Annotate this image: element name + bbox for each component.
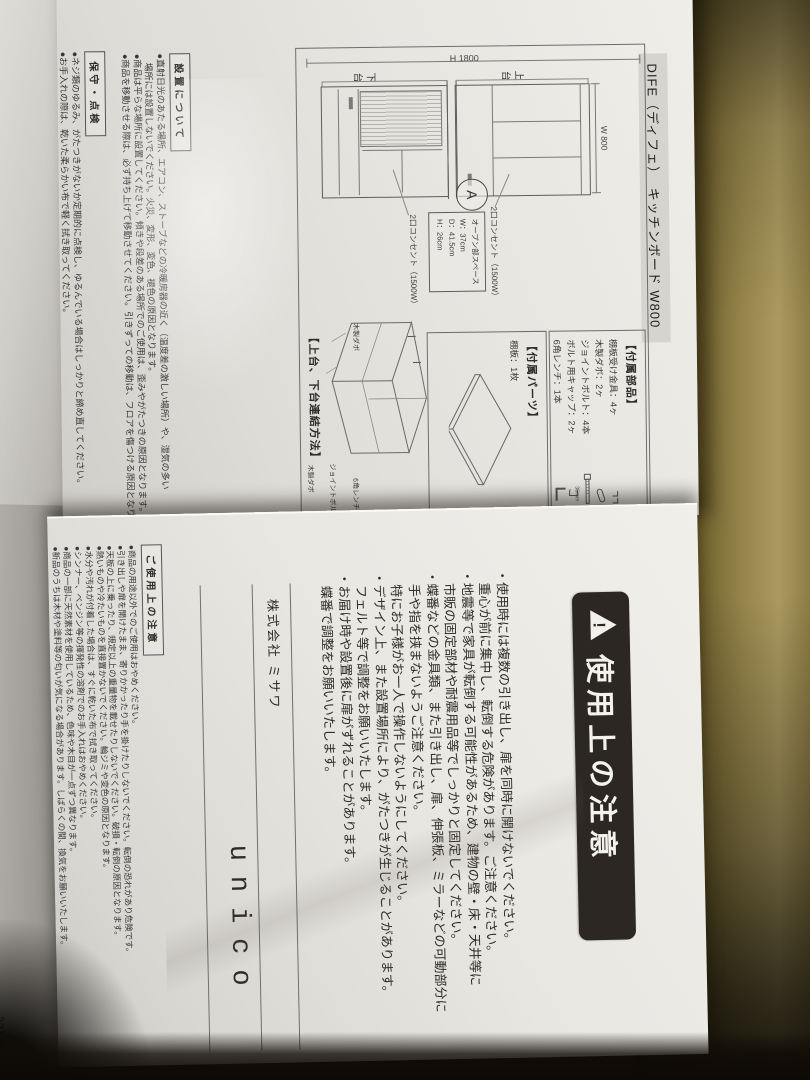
part-item: ボルト用キャップ：2ヶ: [564, 339, 580, 507]
part-item: 6角レンチ：1本: [550, 340, 566, 508]
included-parts-box: 【付属部品】 棚板受け金具：4ヶ 木製ダボ：2ヶ ジョイントボルト：4本 35m…: [549, 330, 648, 517]
assembly-label-wrench: 6角レンチ: [350, 478, 360, 510]
caution-list: ・使用時には複数の引き出し、扉を同時に開けないでください。 重心が前に集中し、転…: [317, 569, 520, 1051]
installation-heading: 設置について: [169, 53, 191, 151]
width-dim-line: [595, 83, 597, 193]
divider-rule: [290, 584, 301, 1050]
height-dim-tick-top: [639, 55, 640, 64]
caution-banner-title: 使用上の注意: [581, 654, 627, 865]
unico-logo: unico: [222, 844, 255, 1001]
open-space-d: D：41.5cm: [445, 219, 457, 285]
height-dim-tick-bottom: [306, 59, 307, 68]
part-item: 棚板受け金具：4ヶ: [606, 339, 622, 507]
open-space-title: オープン部スペース: [469, 219, 481, 285]
company-name: 株式会社 ミサワ: [264, 599, 285, 710]
lower-unit-drawing: [321, 85, 449, 199]
svg-text:!: !: [589, 622, 608, 628]
shelf-board-sketch: [443, 370, 513, 489]
outlet-callout-upper: 2口コンセント（1500W）: [488, 206, 500, 300]
detail-marker-a: A: [456, 179, 488, 211]
part-item: 木製ダボ：2ヶ: [592, 339, 608, 507]
height-dim-label: H 1800: [450, 53, 479, 63]
dowel-icon: [593, 487, 607, 505]
width-dim-tick-left: [591, 83, 600, 84]
outlet-callout-lower: 2口コンセント（1500W）: [407, 214, 419, 308]
assembly-label-dowel-bottom: 木製ダボ: [305, 465, 315, 493]
warning-icon: !: [583, 608, 619, 643]
part-item: ジョイントボルト：4本 35mm: [578, 339, 594, 507]
photo-of-instruction-sheets: 221U05 DIFE（ディフェ） キッチンボード W800 H 1800 W …: [0, 0, 810, 1080]
detail-marker-letter: A: [464, 190, 480, 200]
open-space-box: オープン部スペース W：37cm D：41.5cm H：26cm: [429, 212, 486, 293]
diagram-frame: H 1800 W 800 上台 下台: [295, 44, 651, 520]
divider-rule: [200, 585, 211, 1051]
accessory-heading: 【付属パーツ】: [524, 340, 542, 508]
caution-banner: ! 使用上の注意: [572, 591, 636, 940]
included-parts-heading: 【付属部品】: [623, 339, 641, 507]
hex-wrench-icon: [549, 486, 567, 504]
open-space-w: W：37cm: [457, 219, 469, 285]
assembly-heading: 【上台、下台連結方法】: [306, 332, 324, 464]
outlet-mark-lower: [349, 97, 353, 109]
maintenance-heading: 保守・点検: [84, 51, 106, 136]
width-dim-tick-right: [592, 192, 601, 193]
spec-sheet: DIFE（ディフェ） キッチンボード W800 H 1800 W 800 上台 …: [56, 0, 699, 523]
dark-table-edge: [0, 1032, 810, 1080]
assembly-label-dowel-top: 木製ダボ: [350, 323, 360, 351]
assembly-sketch: [318, 302, 431, 465]
accessory-parts-box: 【付属パーツ】 棚板：1枚: [427, 331, 549, 518]
usage-notes-heading: ご使用上の注意: [141, 544, 164, 655]
shelf-bracket-icon: [607, 489, 621, 505]
width-dim-label: W 800: [599, 83, 610, 193]
maintenance-section: 保守・点検 ●ネジ類のゆるみ、がたつきがないか定期的に点検し、ゆるんでいる場合は…: [57, 51, 111, 522]
installation-section: 設置について ●直射日光のあたる場所、エアコン、ストーブなどの冷暖房器の近く（温…: [119, 53, 196, 520]
tambour-door: [360, 90, 443, 147]
open-space-h: H：26cm: [434, 219, 446, 285]
